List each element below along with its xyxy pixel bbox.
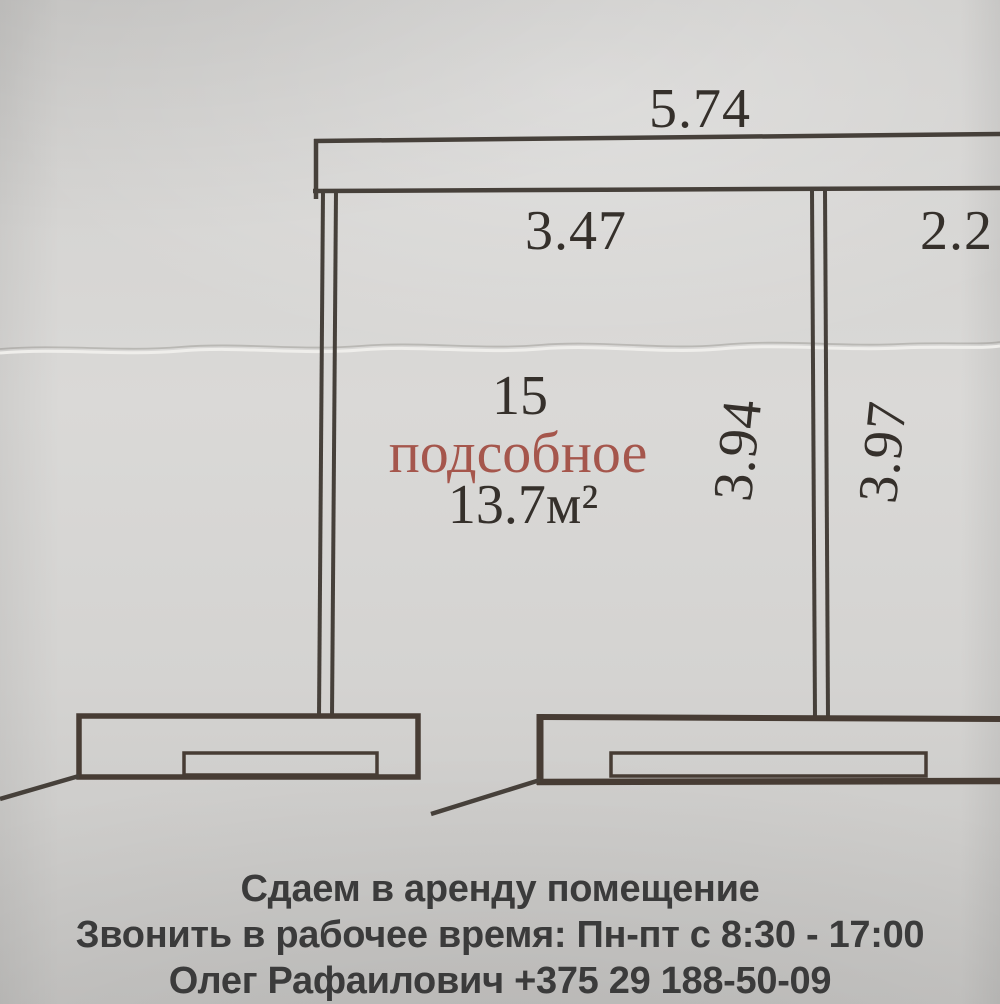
- right-gate-leaf: [611, 753, 926, 776]
- advert-line-offer: Сдаем в аренду помещение: [0, 866, 1000, 912]
- dim-right-room-width: 2.2: [920, 203, 993, 259]
- right-gate-block-bottom: [537, 781, 1000, 782]
- top-wall-inner-line: [313, 188, 1000, 191]
- left-gate-block: [79, 716, 418, 777]
- advert-line-contact: Олег Рафаилович +375 29 188-50-09: [0, 958, 1000, 1004]
- left-diagonal-wall-line: [0, 776, 79, 799]
- middle-wall-right-line: [825, 190, 828, 718]
- left-wall-outer-line: [319, 191, 323, 717]
- dim-room-height-left: 3.94: [705, 396, 771, 503]
- advert-line-hours: Звонить в рабочее время: Пн-пт с 8:30 - …: [0, 912, 1000, 958]
- dim-room-width: 3.47: [525, 203, 627, 259]
- left-gate-leaf: [184, 753, 377, 775]
- right-gate-block-top: [540, 717, 1000, 719]
- middle-wall-left-line: [812, 190, 815, 718]
- room-area: 13.7м²: [448, 477, 598, 533]
- floor-plan-photo: 5.74 3.47 2.2 3.94 3.97 15 подсобное 13.…: [0, 0, 1000, 1004]
- advert-text-block: Сдаем в аренду помещение Звонить в рабоч…: [0, 866, 1000, 1004]
- left-wall-inner-line: [332, 191, 336, 717]
- middle-diagonal-wall-line: [431, 780, 540, 814]
- room-number: 15: [492, 368, 548, 424]
- dim-room-height-right: 3.97: [850, 398, 916, 505]
- dim-top-width: 5.74: [649, 81, 751, 137]
